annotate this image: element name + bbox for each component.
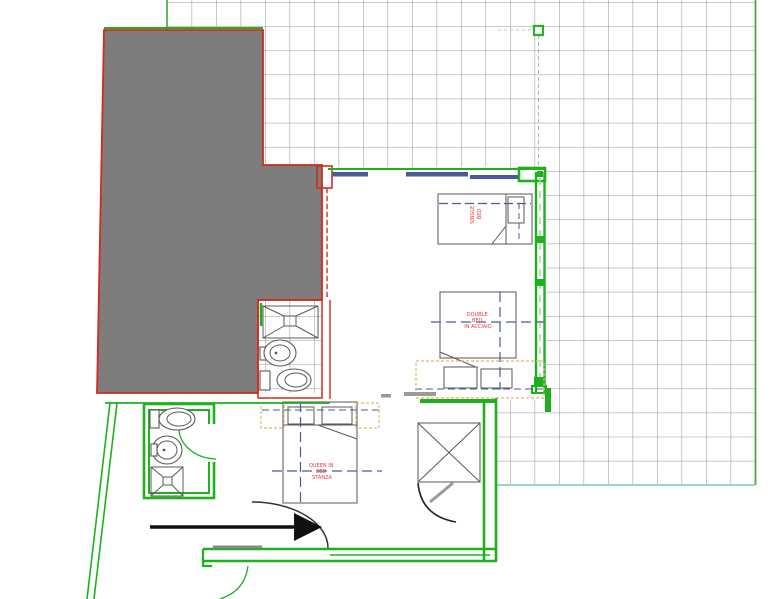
wall-stud <box>537 279 544 286</box>
wall-stud <box>537 236 544 243</box>
window-segment <box>406 172 468 177</box>
wall-gray-stub <box>404 392 436 396</box>
single-bed <box>438 194 532 244</box>
door-opening <box>207 424 219 462</box>
window-segment <box>332 172 368 177</box>
toilet-icon <box>260 369 311 391</box>
sink-icon <box>151 436 182 464</box>
floor-plan-drawing: SINGLE BED DOUBLE BED IN ACCIAIO QUEEN I… <box>0 0 778 599</box>
floor-plan-canvas: SINGLE BED DOUBLE BED IN ACCIAIO QUEEN I… <box>0 0 778 599</box>
wall-stud <box>534 377 544 386</box>
wall-stub <box>545 388 551 412</box>
site-boundary-lines <box>87 403 117 599</box>
window-segment <box>470 175 520 179</box>
grid-node-icon <box>534 26 543 35</box>
wall-gray-stub <box>381 394 391 398</box>
wall-corner-stud <box>537 171 543 177</box>
toilet-icon <box>150 408 195 430</box>
